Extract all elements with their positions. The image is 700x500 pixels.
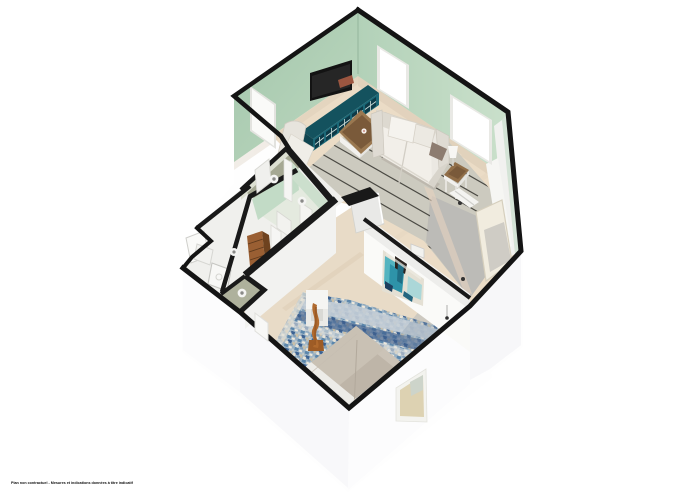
svg-text:Plan non contractuel - Mesures: Plan non contractuel - Mesures et indica… [11, 481, 134, 485]
